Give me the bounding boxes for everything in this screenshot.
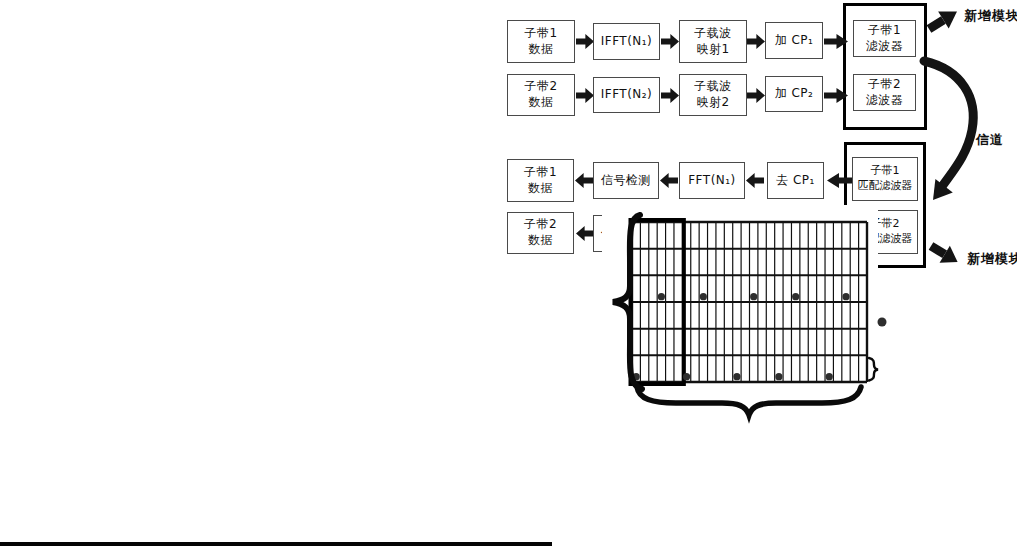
flow-box-tx-subband2-data: 子带2 数据 — [507, 74, 575, 116]
arrow-right-icon — [661, 34, 679, 49]
document-page: 子带1 数据 IFFT(N₁) 子载波 映射1 加 CP₁ 子带1 滤波器 子带… — [0, 0, 1017, 549]
arrow-left-icon — [660, 173, 678, 188]
arrow-left-icon — [576, 226, 594, 241]
new-module-label-top: 新增模块 — [964, 7, 1017, 25]
grid-inset-background — [602, 205, 878, 430]
arrow-left-icon — [575, 173, 593, 188]
arrow-right-icon — [576, 34, 594, 49]
flow-box-tx-mapping1: 子载波 映射1 — [679, 20, 747, 63]
flow-box-tx-subband1-data: 子带1 数据 — [507, 20, 575, 63]
new-module-arrow-top-icon — [924, 3, 963, 37]
arrow-right-icon — [747, 88, 765, 103]
flow-box-rx-subband1-data: 子带1 数据 — [507, 159, 574, 202]
flow-box-rx-matched-filter1: 子带1 匹配滤波器 — [852, 157, 918, 201]
flow-box-rx-removecp1: 去 CP₁ — [767, 162, 824, 199]
flow-box-tx-filter1: 子带1 滤波器 — [853, 20, 916, 57]
flow-box-tx-filter2: 子带2 滤波器 — [853, 74, 916, 111]
channel-label: 信道 — [976, 131, 1004, 149]
flow-box-rx-fft1: FFT(N₁) — [679, 162, 745, 199]
arrow-right-icon — [576, 88, 594, 103]
flow-box-rx-detect1: 信号检测 — [593, 162, 659, 199]
flow-box-rx-subband2-data: 子带2 数据 — [507, 212, 574, 254]
arrow-right-icon — [747, 34, 765, 49]
flow-box-tx-addcp1: 加 CP₁ — [765, 22, 823, 59]
arrow-right-icon — [661, 88, 679, 103]
new-module-arrow-bottom-icon — [926, 237, 963, 270]
flow-box-tx-ifft1: IFFT(N₁) — [593, 23, 660, 60]
flow-box-tx-addcp2: 加 CP₂ — [765, 76, 823, 112]
flow-box-tx-mapping2: 子载波 映射2 — [679, 74, 747, 116]
arrow-left-icon — [746, 173, 764, 188]
page-footer-rule — [0, 542, 552, 546]
flow-box-tx-ifft2: IFFT(N₂) — [593, 77, 660, 113]
channel-curve-arrow — [924, 61, 973, 188]
new-module-label-bottom: 新增模块 — [967, 250, 1017, 268]
channel-curve-arrowhead-icon — [924, 179, 952, 207]
pilot-legend-dot — [878, 318, 887, 327]
